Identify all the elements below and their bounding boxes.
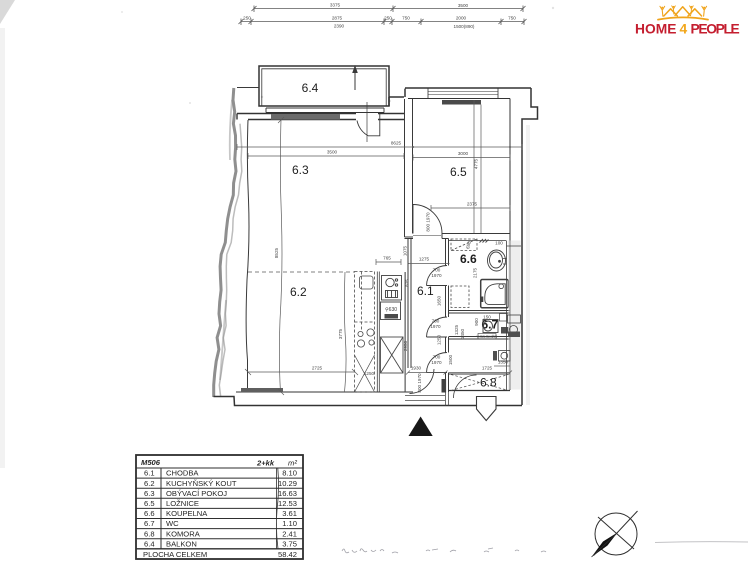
svg-text:VODOMĚR: VODOMĚR (477, 334, 498, 339)
svg-text:PEOPLE: PEOPLE (691, 22, 740, 37)
svg-text:4: 4 (680, 22, 688, 37)
svg-text:2375: 2375 (467, 202, 478, 207)
svg-text:KUCHYŇSKÝ KOUT: KUCHYŇSKÝ KOUT (166, 479, 237, 488)
svg-text:900: 900 (474, 318, 479, 326)
svg-text:2175: 2175 (473, 267, 478, 278)
svg-text:6.7: 6.7 (144, 519, 155, 528)
svg-text:1500: 1500 (448, 354, 453, 365)
svg-text:PLOCHA CELKEM: PLOCHA CELKEM (143, 550, 207, 559)
svg-text:6.6: 6.6 (144, 509, 155, 518)
svg-text:6.6: 6.6 (460, 252, 477, 266)
svg-text:4775: 4775 (474, 158, 479, 169)
svg-text:1350: 1350 (498, 360, 509, 365)
svg-text:1970: 1970 (430, 324, 441, 329)
svg-text:750: 750 (508, 16, 516, 21)
svg-text:6.3: 6.3 (144, 489, 155, 498)
svg-text:1.10: 1.10 (282, 519, 297, 528)
svg-text:WC: WC (166, 519, 179, 528)
svg-text:800 1970: 800 1970 (426, 212, 431, 232)
svg-text:150: 150 (483, 315, 491, 320)
svg-text:1250: 1250 (437, 334, 442, 345)
svg-text:765: 765 (383, 256, 391, 261)
svg-text:700: 700 (433, 268, 441, 273)
svg-text:825: 825 (405, 279, 410, 287)
svg-text:58.42: 58.42 (278, 550, 297, 559)
svg-text:10.29: 10.29 (278, 479, 297, 488)
svg-text:1075: 1075 (403, 245, 408, 256)
svg-text:1250: 1250 (364, 371, 375, 376)
svg-text:700: 700 (433, 355, 441, 360)
svg-text:3375: 3375 (330, 3, 341, 8)
svg-text:OBÝVACÍ POKOJ: OBÝVACÍ POKOJ (166, 489, 227, 498)
svg-text:6.4: 6.4 (302, 81, 319, 95)
svg-text:6.8: 6.8 (144, 529, 155, 538)
svg-text:BALKON: BALKON (166, 539, 197, 548)
svg-text:1450: 1450 (460, 328, 465, 339)
svg-text:6.2: 6.2 (144, 479, 155, 488)
svg-text:800 1970: 800 1970 (417, 373, 422, 393)
svg-text:250: 250 (243, 16, 251, 21)
svg-text:8.10: 8.10 (282, 469, 297, 478)
svg-text:CHODBA: CHODBA (166, 469, 199, 478)
svg-text:6.4: 6.4 (144, 539, 155, 548)
svg-text:1725: 1725 (482, 366, 493, 371)
svg-text:1650: 1650 (437, 295, 442, 306)
svg-text:KOMORA: KOMORA (166, 529, 201, 538)
svg-text:8625: 8625 (391, 141, 402, 146)
svg-text:1500(890): 1500(890) (454, 24, 475, 29)
svg-text:3000: 3000 (458, 151, 469, 156)
svg-text:6.5: 6.5 (144, 499, 155, 508)
svg-text:700: 700 (432, 319, 440, 324)
svg-text:100: 100 (495, 241, 503, 246)
svg-text:2950: 2950 (403, 340, 408, 351)
svg-text:3500: 3500 (327, 150, 338, 155)
svg-text:M506: M506 (141, 458, 161, 467)
svg-text:8525: 8525 (274, 247, 279, 258)
svg-text:LOŽNICE: LOŽNICE (166, 499, 199, 508)
svg-text:1325: 1325 (454, 324, 459, 335)
svg-text:3775: 3775 (338, 328, 343, 339)
svg-text:3.61: 3.61 (282, 509, 297, 518)
svg-text:1930: 1930 (411, 366, 422, 371)
svg-text:3500: 3500 (458, 3, 469, 8)
svg-text:3.75: 3.75 (282, 539, 297, 548)
svg-text:1275: 1275 (419, 257, 430, 262)
svg-text:750: 750 (402, 16, 410, 21)
svg-text:2+kk: 2+kk (256, 459, 275, 468)
svg-text:1970: 1970 (431, 273, 442, 278)
svg-text:6.5: 6.5 (450, 165, 467, 179)
svg-text:2875: 2875 (332, 16, 343, 21)
svg-text:2725: 2725 (312, 366, 323, 371)
svg-text:1970: 1970 (431, 360, 442, 365)
svg-text:6.8: 6.8 (480, 376, 497, 390)
svg-text:KOUPELNA: KOUPELNA (166, 509, 208, 518)
svg-text:2.41: 2.41 (282, 529, 297, 538)
svg-text:⚲630: ⚲630 (385, 307, 397, 313)
svg-text:250: 250 (384, 16, 392, 21)
svg-text:12.53: 12.53 (278, 499, 297, 508)
svg-text:6.3: 6.3 (292, 163, 309, 177)
svg-text:HOME: HOME (635, 22, 676, 37)
svg-text:6.1: 6.1 (417, 284, 434, 298)
svg-text:2390: 2390 (334, 24, 345, 29)
svg-text:2000: 2000 (456, 16, 467, 21)
svg-text:6.1: 6.1 (144, 469, 155, 478)
svg-text:6.2: 6.2 (290, 285, 307, 299)
svg-text:16.63: 16.63 (278, 489, 297, 498)
svg-text:m²: m² (288, 459, 297, 468)
